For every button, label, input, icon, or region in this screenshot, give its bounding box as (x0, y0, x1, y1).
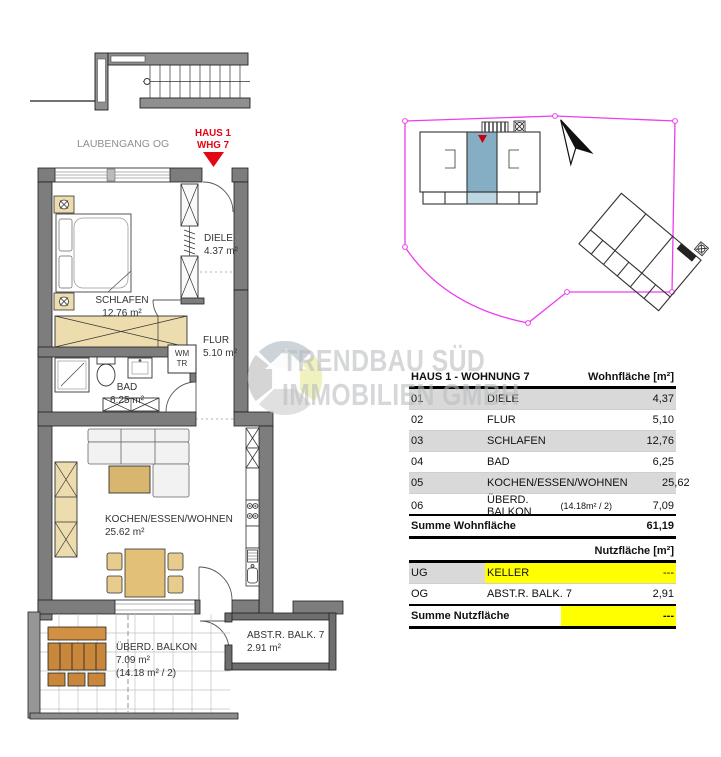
room-area-balkon: 7.09 m² (116, 655, 151, 666)
table-row: 06 ÜBERD. BALKON (14.18m² / 2) 7,09 (409, 494, 676, 514)
cell-nr: 02 (409, 410, 485, 430)
building-1 (420, 121, 540, 204)
balcony-railing-bottom (30, 713, 238, 719)
table-title: HAUS 1 - WOHNUNG 7 (411, 371, 530, 383)
cell-name: KOCHEN/ESSEN/WOHNEN (485, 473, 630, 493)
wohnflaeche-table: HAUS 1 - WOHNUNG 7 Wohnfläche [m²] 01 DI… (409, 371, 676, 539)
toilet-icon (97, 357, 115, 386)
room-area-abstellraum: 2.91 m² (247, 643, 282, 654)
wohnflaeche-unit-header: Wohnfläche [m²] (588, 371, 674, 383)
cell-name: FLUR (485, 410, 614, 430)
site-elevator-icon (514, 121, 525, 132)
cell-value: 4,37 (614, 389, 676, 409)
staircase-icon (30, 53, 250, 110)
kitchen-unit-icon (246, 428, 259, 586)
wardrobe-icon (55, 316, 187, 347)
highlighted-unit-balcony (467, 192, 497, 204)
unit-marker-line1: HAUS 1 (195, 127, 231, 139)
room-label-flur: FLUR (203, 335, 229, 346)
cell-name: BAD (485, 452, 614, 472)
dining-table-icon (107, 549, 183, 597)
sum-value: --- (561, 606, 676, 626)
table-row: UG KELLER --- (409, 563, 676, 584)
room-label-bad: BAD (117, 382, 138, 393)
sink-icon (128, 358, 152, 378)
cell-nr: 04 (409, 452, 485, 472)
table-row: 01 DIELE 4,37 (409, 389, 676, 410)
cell-nr: 01 (409, 389, 485, 409)
marker-arrow-icon (203, 152, 224, 167)
room-note-balkon: (14.18 m² / 2) (116, 668, 176, 679)
cell-name: SCHLAFEN (485, 431, 614, 451)
cell-nr: 03 (409, 431, 485, 451)
cell-value: 25,62 (630, 473, 692, 493)
cell-value: 12,76 (614, 431, 676, 451)
coffee-table-icon (109, 466, 150, 493)
washer-label: WM (175, 349, 190, 358)
coat-rack-icon (184, 226, 195, 256)
table-row: 03 SCHLAFEN 12,76 (409, 431, 676, 452)
cell-nr: 06 (409, 494, 485, 518)
unit-marker-line2: WHG 7 (197, 139, 229, 151)
table-row: 05 KOCHEN/ESSEN/WOHNEN 25,62 (409, 473, 676, 494)
window-icon (55, 168, 170, 182)
room-area-diele: 4.37 m² (204, 246, 239, 257)
sum-label: Summe Wohnfläche (411, 520, 516, 532)
cell-value: --- (614, 563, 676, 583)
bed-icon (56, 214, 131, 292)
room-label-diele: DIELE (204, 233, 233, 244)
table-row: 04 BAD 6,25 (409, 452, 676, 473)
cell-nr: OG (409, 584, 485, 604)
washer-dryer-box: WM TR (168, 345, 196, 373)
balcony-storage-room (225, 613, 336, 670)
corridor-label: LAUBENGANG OG (77, 138, 169, 150)
floor-plan-drawing: LAUBENGANG OG HAUS 1 WHG 7 (0, 0, 400, 757)
balcony-door-window-icon (115, 600, 195, 614)
room-label-wohnen: KOCHEN/ESSEN/WOHNEN (105, 514, 233, 525)
sum-label: Summe Nutzfläche (409, 606, 561, 626)
table-row: OG ABST.R. BALK. 7 2,91 (409, 584, 676, 604)
stove-icon (246, 500, 259, 526)
nutzflaeche-sum-row: Summe Nutzfläche --- (409, 604, 676, 629)
shaft-divider (181, 184, 198, 298)
cell-note: (14.18m² / 2) (560, 501, 612, 511)
floorplan-page: LAUBENGANG OG HAUS 1 WHG 7 (0, 0, 721, 757)
table-row: 02 FLUR 5,10 (409, 410, 676, 431)
cell-value: 5,10 (614, 410, 676, 430)
site-stairs-icon (482, 122, 508, 132)
kitchen-sink-icon (246, 548, 259, 586)
balcony-furniture-icon (48, 627, 106, 686)
balcony-railing-left (28, 612, 40, 718)
wohnflaeche-header: HAUS 1 - WOHNUNG 7 Wohnfläche [m²] (409, 371, 676, 389)
nutzflaeche-unit-header: Nutzfläche [m²] (409, 543, 676, 563)
unit-marker: HAUS 1 WHG 7 (195, 127, 231, 167)
cell-value: 7,09 (614, 494, 676, 518)
room-area-flur: 5.10 m² (203, 348, 238, 359)
cell-name: ABST.R. BALK. 7 (485, 584, 614, 604)
dryer-label: TR (177, 359, 188, 368)
shower-icon (55, 358, 89, 392)
north-arrow-icon (550, 114, 592, 164)
room-label-balkon: ÜBERD. BALKON (116, 641, 197, 653)
cell-name: ÜBERD. BALKON (14.18m² / 2) (485, 494, 614, 518)
nutzflaeche-table: Nutzfläche [m²] UG KELLER --- OG ABST.R.… (409, 543, 676, 629)
room-area-schlafen: 12.76 m² (102, 308, 142, 319)
room-area-wohnen: 25.62 m² (105, 527, 145, 538)
cell-name: DIELE (485, 389, 614, 409)
sum-value: 61,19 (646, 520, 674, 532)
cell-value: 2,91 (614, 584, 676, 604)
room-label-abstellraum: ABST.R. BALK. 7 (247, 630, 325, 641)
cell-nr: 05 (409, 473, 485, 493)
site-plan (390, 95, 720, 335)
area-tables: HAUS 1 - WOHNUNG 7 Wohnfläche [m²] 01 DI… (409, 371, 676, 629)
cell-nr: UG (409, 563, 485, 583)
tall-cabinet-icon (55, 462, 77, 557)
cell-value: 6,25 (614, 452, 676, 472)
room-area-bad: 6.25 m² (110, 395, 145, 406)
room-label-schlafen: SCHLAFEN (95, 295, 148, 306)
cell-name: KELLER (485, 563, 614, 583)
